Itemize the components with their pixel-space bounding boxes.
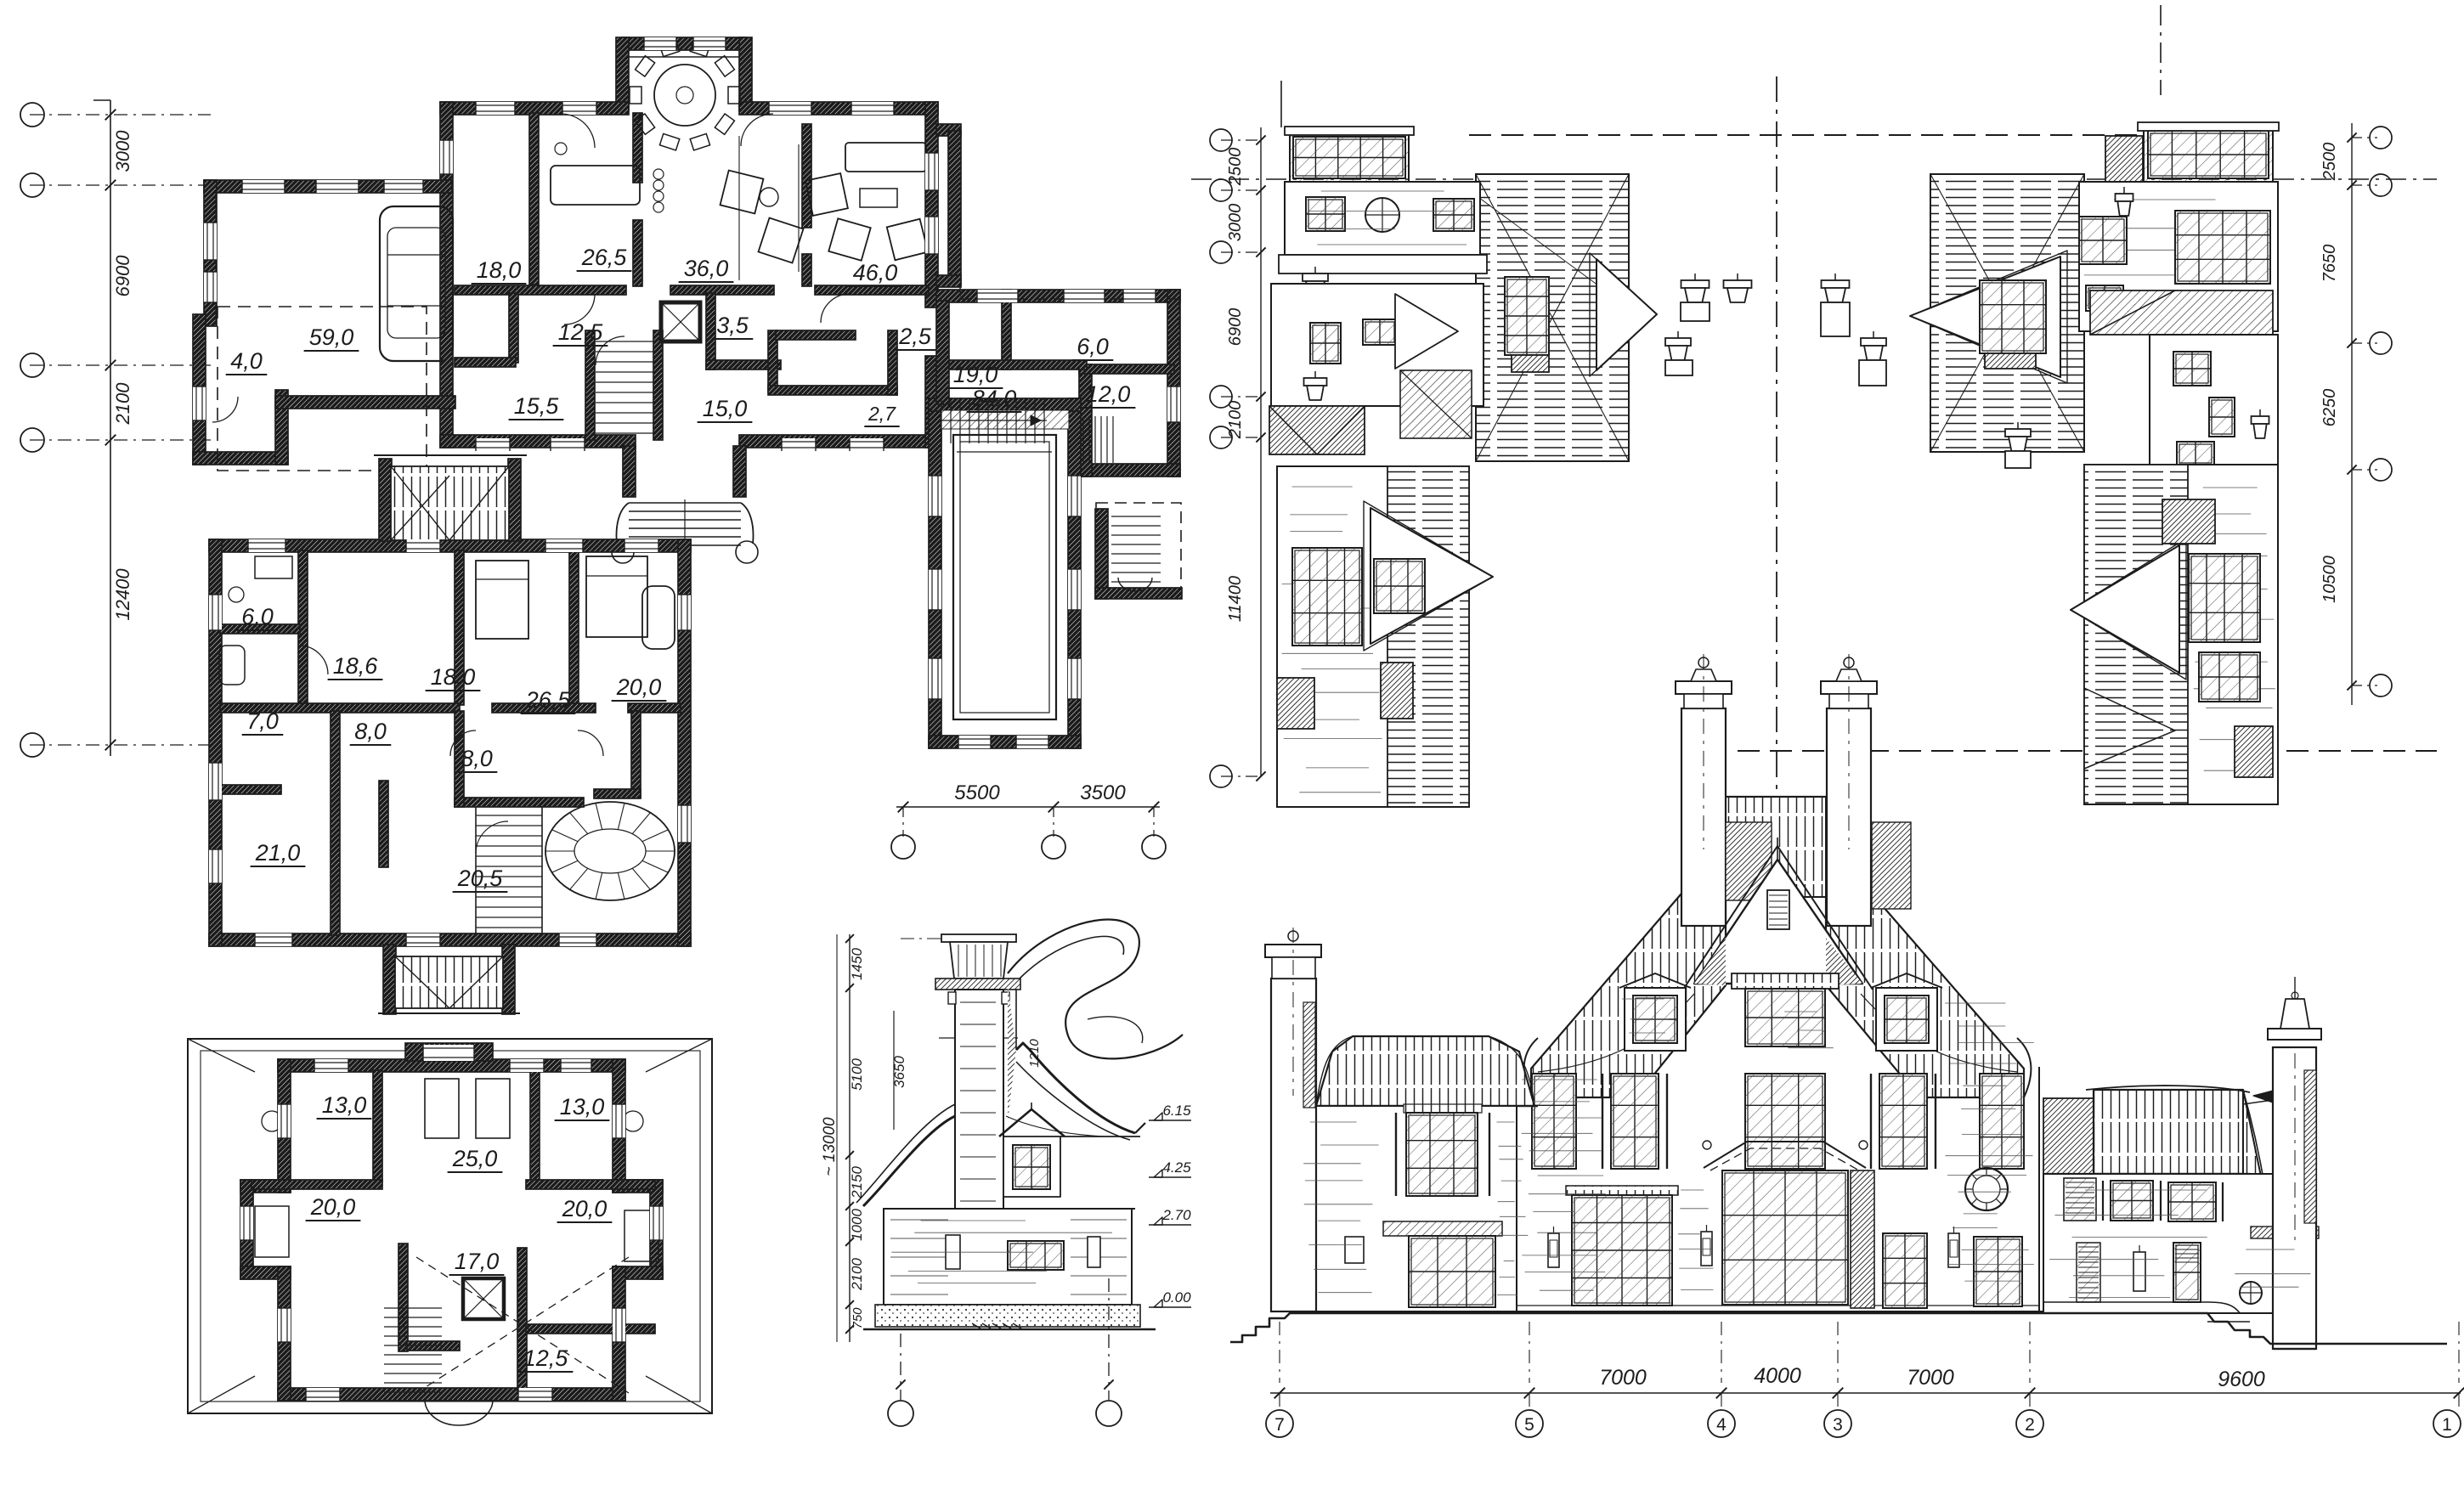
svg-text:2150: 2150 <box>849 1166 865 1199</box>
svg-text:3650: 3650 <box>891 1056 907 1088</box>
svg-text:20,0: 20,0 <box>310 1194 356 1220</box>
svg-text:1000: 1000 <box>849 1209 865 1241</box>
svg-text:18,0: 18,0 <box>477 257 522 283</box>
svg-text:3000: 3000 <box>112 130 133 172</box>
svg-text:2500: 2500 <box>2320 143 2339 182</box>
svg-text:36,0: 36,0 <box>684 256 729 281</box>
svg-text:46,0: 46,0 <box>853 260 898 285</box>
svg-text:2.70: 2.70 <box>1161 1207 1191 1223</box>
svg-text:8,0: 8,0 <box>461 746 493 771</box>
svg-text:11400: 11400 <box>1226 576 1245 622</box>
svg-text:84,0: 84,0 <box>972 386 1017 411</box>
svg-text:2,5: 2,5 <box>898 324 932 349</box>
svg-text:6.15: 6.15 <box>1162 1103 1191 1119</box>
svg-text:15,5: 15,5 <box>514 393 560 419</box>
svg-text:4000: 4000 <box>1754 1364 1801 1388</box>
svg-text:2: 2 <box>2025 1415 2035 1435</box>
svg-text:20,5: 20,5 <box>457 866 504 891</box>
svg-text:5100: 5100 <box>849 1058 865 1091</box>
svg-text:~ 13000: ~ 13000 <box>821 1117 839 1176</box>
svg-text:13,0: 13,0 <box>560 1094 605 1120</box>
svg-text:2500: 2500 <box>1226 148 1245 187</box>
svg-text:26,5: 26,5 <box>525 687 572 713</box>
svg-text:12,5: 12,5 <box>523 1345 569 1371</box>
svg-text:7650: 7650 <box>2320 245 2339 283</box>
svg-text:3000: 3000 <box>1226 204 1245 242</box>
svg-text:4,0: 4,0 <box>230 348 263 374</box>
svg-text:9600: 9600 <box>2218 1368 2265 1391</box>
svg-text:12,0: 12,0 <box>1086 381 1131 407</box>
svg-text:5500: 5500 <box>954 781 1000 804</box>
svg-text:8,0: 8,0 <box>354 719 387 744</box>
svg-text:21,0: 21,0 <box>255 840 301 866</box>
svg-text:6,0: 6,0 <box>241 604 274 629</box>
svg-text:7,0: 7,0 <box>246 708 279 734</box>
svg-text:15,0: 15,0 <box>703 396 748 421</box>
svg-text:17,0: 17,0 <box>455 1249 500 1274</box>
svg-text:7000: 7000 <box>1599 1366 1647 1390</box>
svg-text:7: 7 <box>1274 1415 1285 1435</box>
svg-text:5: 5 <box>1524 1415 1534 1435</box>
svg-text:750: 750 <box>851 1307 865 1329</box>
svg-text:10500: 10500 <box>2320 556 2339 603</box>
svg-text:25,0: 25,0 <box>452 1146 498 1171</box>
svg-text:19,0: 19,0 <box>953 362 998 387</box>
svg-text:26,5: 26,5 <box>581 245 628 270</box>
svg-text:1450: 1450 <box>849 948 865 980</box>
svg-text:7000: 7000 <box>1907 1366 1954 1390</box>
svg-text:6,0: 6,0 <box>1077 334 1109 359</box>
svg-text:18,0: 18,0 <box>431 664 476 690</box>
svg-text:3: 3 <box>1833 1415 1843 1435</box>
svg-text:6900: 6900 <box>1226 308 1245 347</box>
svg-text:3500: 3500 <box>1080 781 1126 804</box>
svg-text:12400: 12400 <box>112 568 133 621</box>
svg-text:20,0: 20,0 <box>616 674 662 700</box>
svg-text:0.00: 0.00 <box>1162 1289 1191 1306</box>
svg-text:6900: 6900 <box>112 255 133 297</box>
svg-text:2100: 2100 <box>1226 401 1245 440</box>
svg-text:18,6: 18,6 <box>333 653 379 679</box>
svg-text:2100: 2100 <box>849 1258 865 1291</box>
svg-text:2,7: 2,7 <box>867 403 896 425</box>
svg-text:3,5: 3,5 <box>716 313 749 338</box>
svg-text:2100: 2100 <box>112 382 133 426</box>
svg-text:4.25: 4.25 <box>1162 1159 1191 1176</box>
svg-text:6250: 6250 <box>2320 389 2339 427</box>
svg-text:4: 4 <box>1716 1415 1726 1435</box>
svg-text:20,0: 20,0 <box>562 1196 608 1221</box>
svg-text:13,0: 13,0 <box>322 1092 367 1118</box>
svg-text:12,5: 12,5 <box>558 319 604 345</box>
svg-text:59,0: 59,0 <box>309 324 354 350</box>
svg-text:1: 1 <box>2442 1415 2452 1435</box>
